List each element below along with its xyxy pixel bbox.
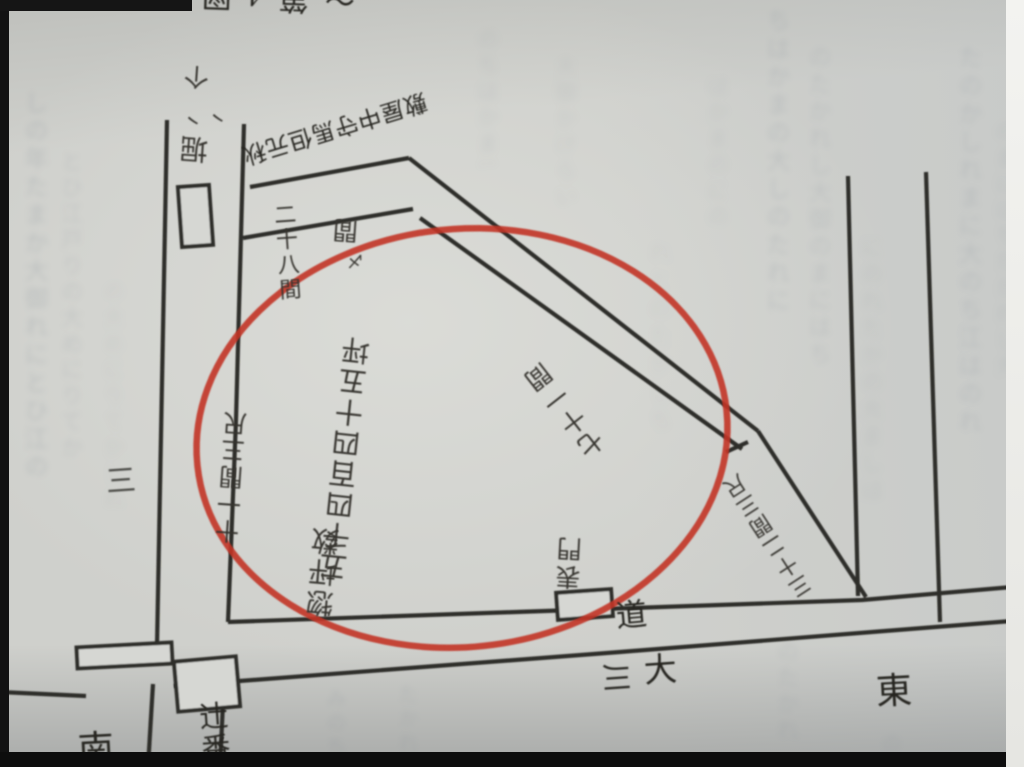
street-left-stub	[0, 692, 86, 696]
flow-mark: 个	[183, 61, 210, 90]
bank-steep-line	[758, 431, 866, 597]
strip-upper-line	[250, 158, 409, 187]
measurement-fragment-ken: 間	[332, 215, 359, 244]
page-edge-white-strip	[1006, 0, 1024, 767]
right-street-left-line	[848, 176, 858, 596]
river-label-kawa: 川	[598, 662, 631, 693]
photo-edge-bottom	[0, 752, 1008, 767]
photo-edge-left	[0, 0, 9, 755]
river-label-dai: 大	[643, 653, 678, 691]
bridge-symbol	[77, 643, 173, 669]
right-street-right-line	[926, 172, 940, 622]
front-gate-label: 表門	[556, 519, 587, 590]
road-label: 道	[615, 598, 649, 634]
canal-label: 堀	[179, 131, 209, 163]
photo-edge-top-left	[0, 0, 192, 11]
margin-label-three: 三	[105, 465, 137, 499]
flow-ticks: 丶丶	[177, 103, 229, 131]
measurement-fragment-tick: 〆	[346, 250, 364, 270]
compass-east-label: 東	[875, 671, 913, 712]
strip-lower-line	[243, 209, 413, 238]
book-page-photo: しの年たまか大御れにとひ江のとひ江戸りの大めにりてかの大めにりてかしれみのちたか…	[0, 0, 1024, 767]
front-gate-symbol	[556, 589, 613, 620]
diagonal-outer-line	[409, 158, 758, 431]
canal-gate-symbol	[178, 185, 213, 247]
map-figure	[0, 0, 1024, 767]
canal-left-line-upper	[157, 120, 167, 646]
red-annotation-ellipse	[176, 202, 749, 673]
